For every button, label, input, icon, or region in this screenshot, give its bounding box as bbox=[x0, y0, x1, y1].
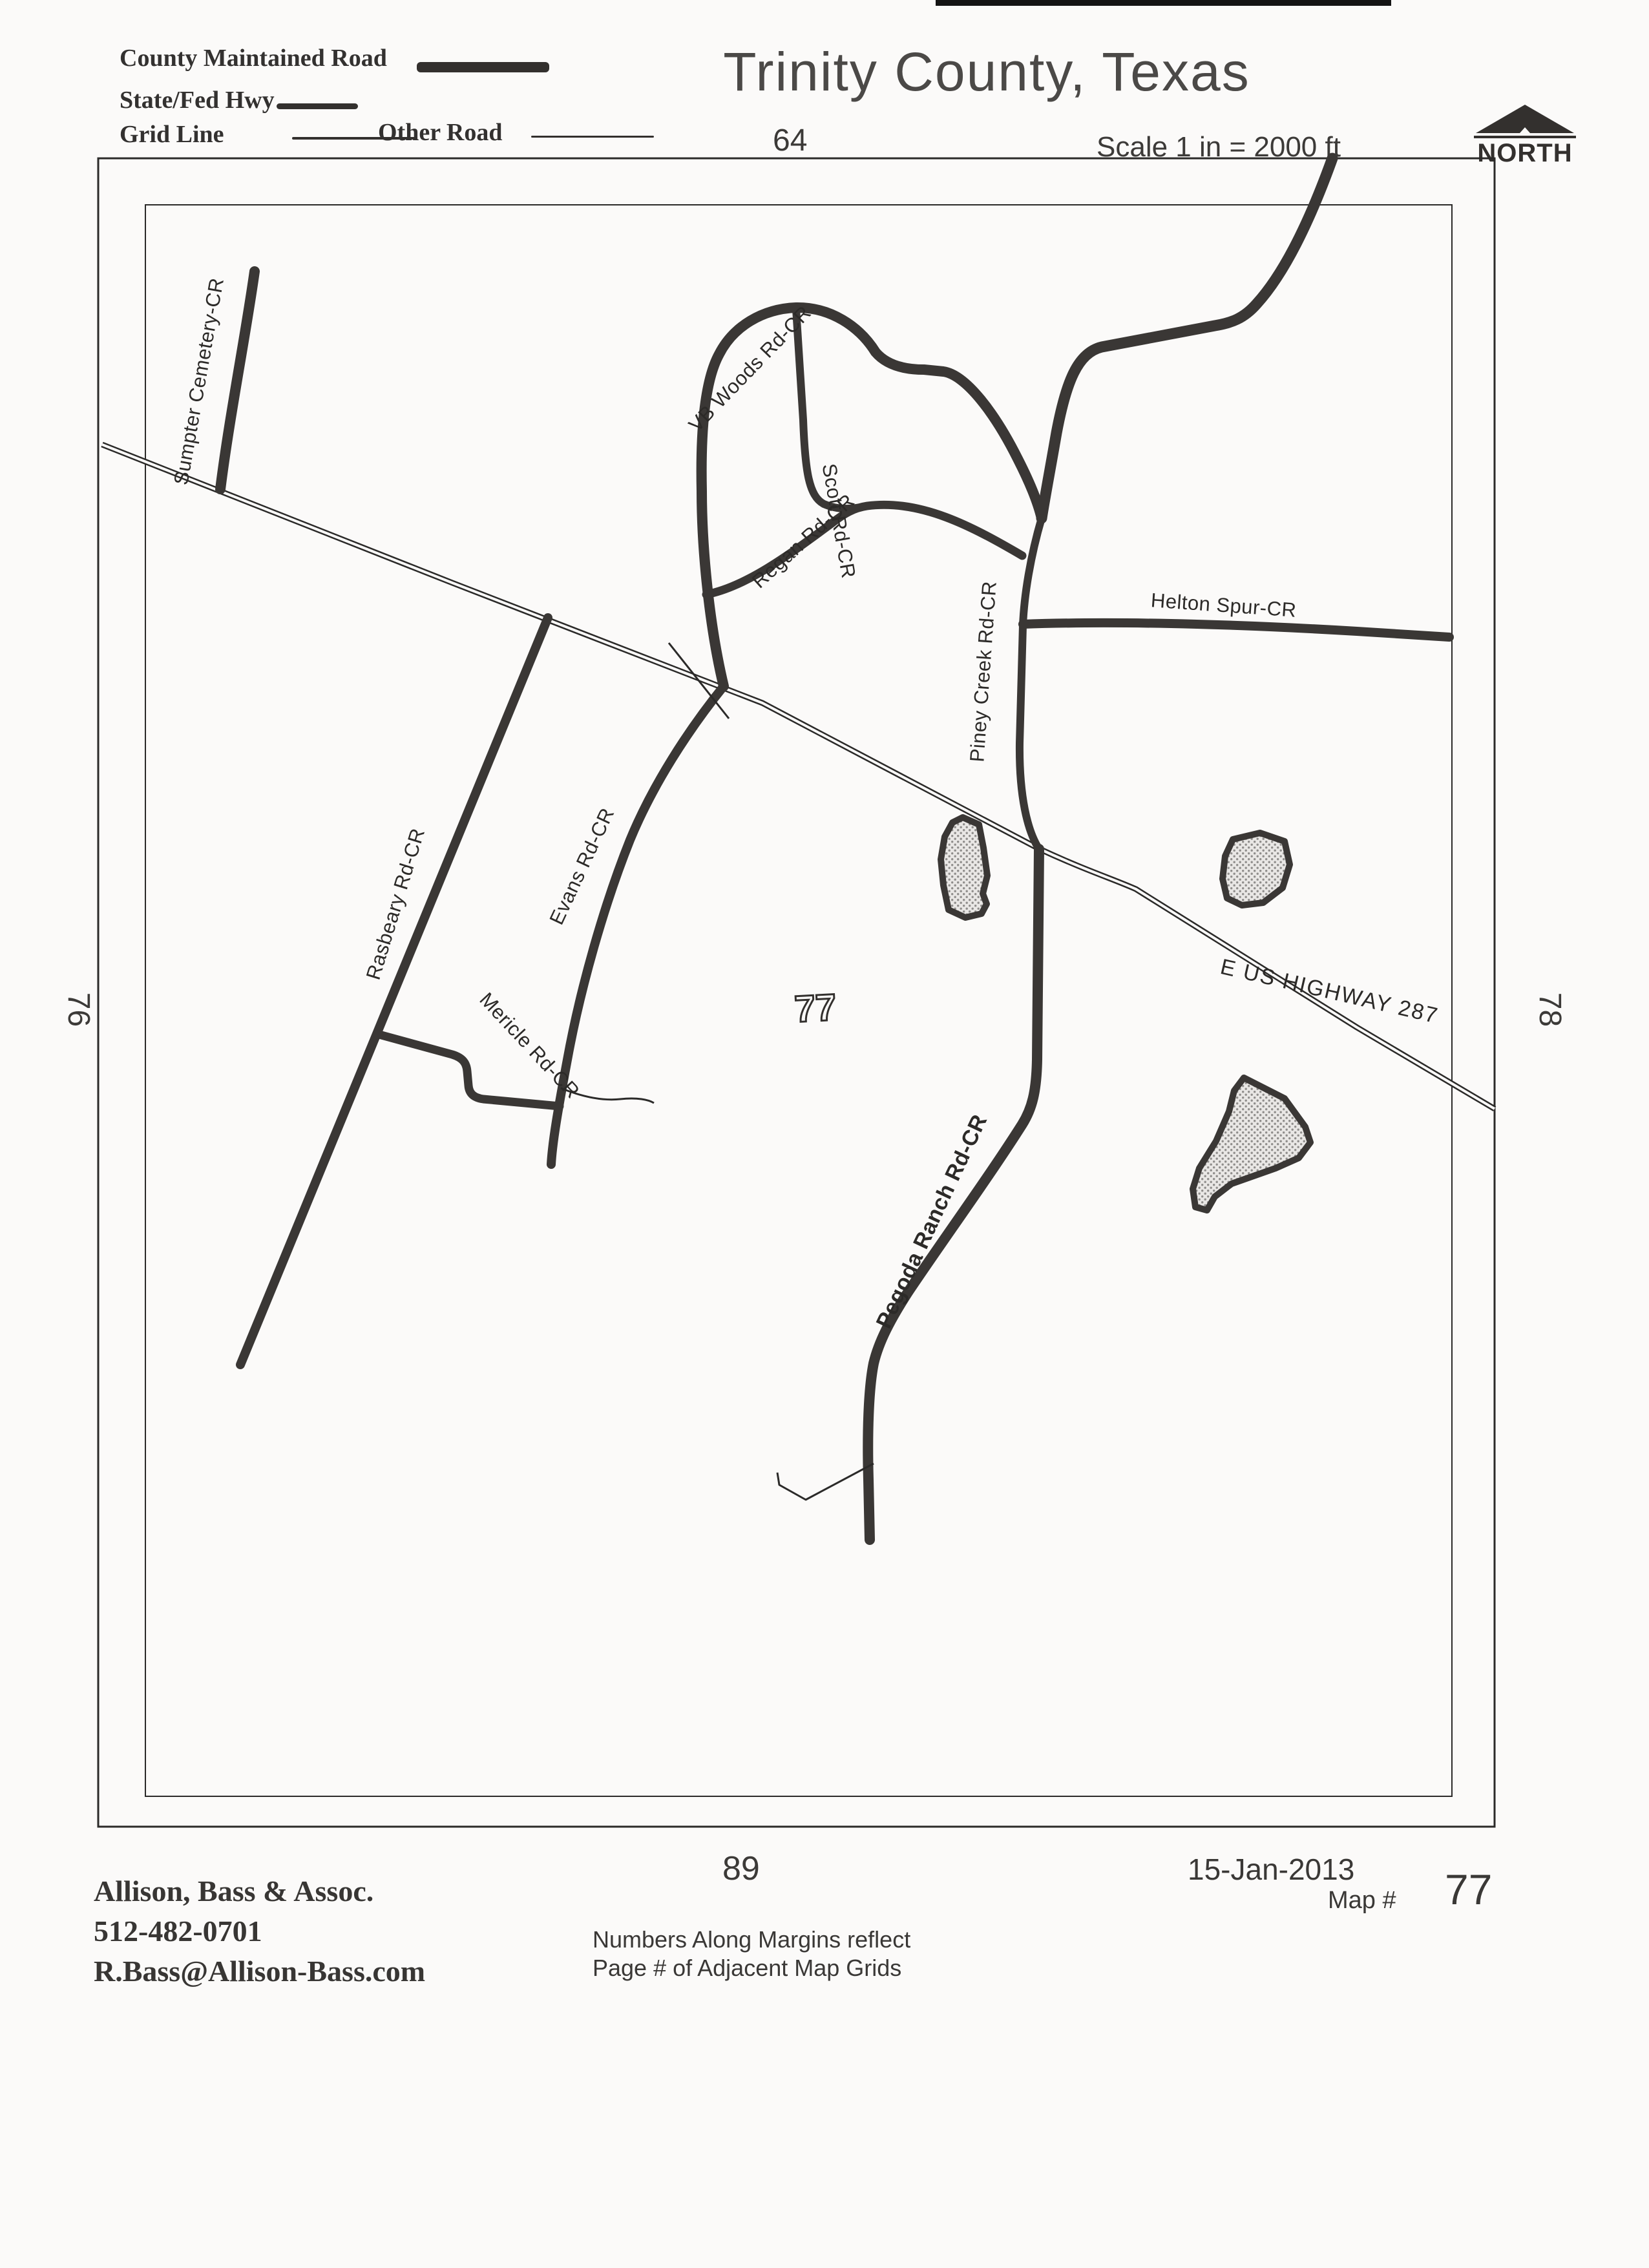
footer-company-block: Allison, Bass & Assoc. 512-482-0701 R.Ba… bbox=[94, 1871, 425, 1991]
other-road-near-pegoda bbox=[777, 1464, 874, 1500]
footer-map-number-label: Map # bbox=[1328, 1887, 1396, 1915]
footer-note-line1: Numbers Along Margins reflect bbox=[593, 1926, 910, 1954]
road-label-pegoda: Pegoda Ranch Rd-CR bbox=[872, 1111, 993, 1332]
road-label-hwy287: E US HIGHWAY 287 bbox=[1218, 954, 1441, 1029]
footer-company: Allison, Bass & Assoc. bbox=[94, 1871, 425, 1911]
road-label-sumpter: Sumpter Cemetery-CR bbox=[169, 276, 228, 487]
road-label-rasbeary: Rasbeary Rd-CR bbox=[362, 826, 430, 983]
road-sumpter-cemetery bbox=[220, 271, 255, 489]
road-label-piney: Piney Creek Rd-CR bbox=[965, 580, 1000, 762]
grid-number-center: 77 bbox=[793, 986, 837, 1030]
lake-small-round bbox=[1223, 833, 1290, 905]
road-helton-spur bbox=[1023, 623, 1449, 637]
lakes bbox=[941, 817, 1310, 1210]
footer-map-number: 77 bbox=[1445, 1865, 1492, 1914]
footer-note-block: Numbers Along Margins reflect Page # of … bbox=[593, 1926, 910, 1982]
lake-large bbox=[1193, 1078, 1310, 1210]
lake-small-elongated bbox=[941, 817, 987, 918]
road-piney-creek bbox=[1020, 518, 1042, 849]
footer-phone: 512-482-0701 bbox=[94, 1911, 425, 1951]
road-rasbeary bbox=[240, 618, 548, 1365]
footer-date: 15-Jan-2013 bbox=[1188, 1852, 1354, 1887]
road-county-from-northeast bbox=[1042, 158, 1332, 518]
road-label-helton: Helton Spur-CR bbox=[1150, 589, 1297, 622]
footer-note-line2: Page # of Adjacent Map Grids bbox=[593, 1954, 910, 1982]
footer-email: R.Bass@Allison-Bass.com bbox=[94, 1951, 425, 1991]
